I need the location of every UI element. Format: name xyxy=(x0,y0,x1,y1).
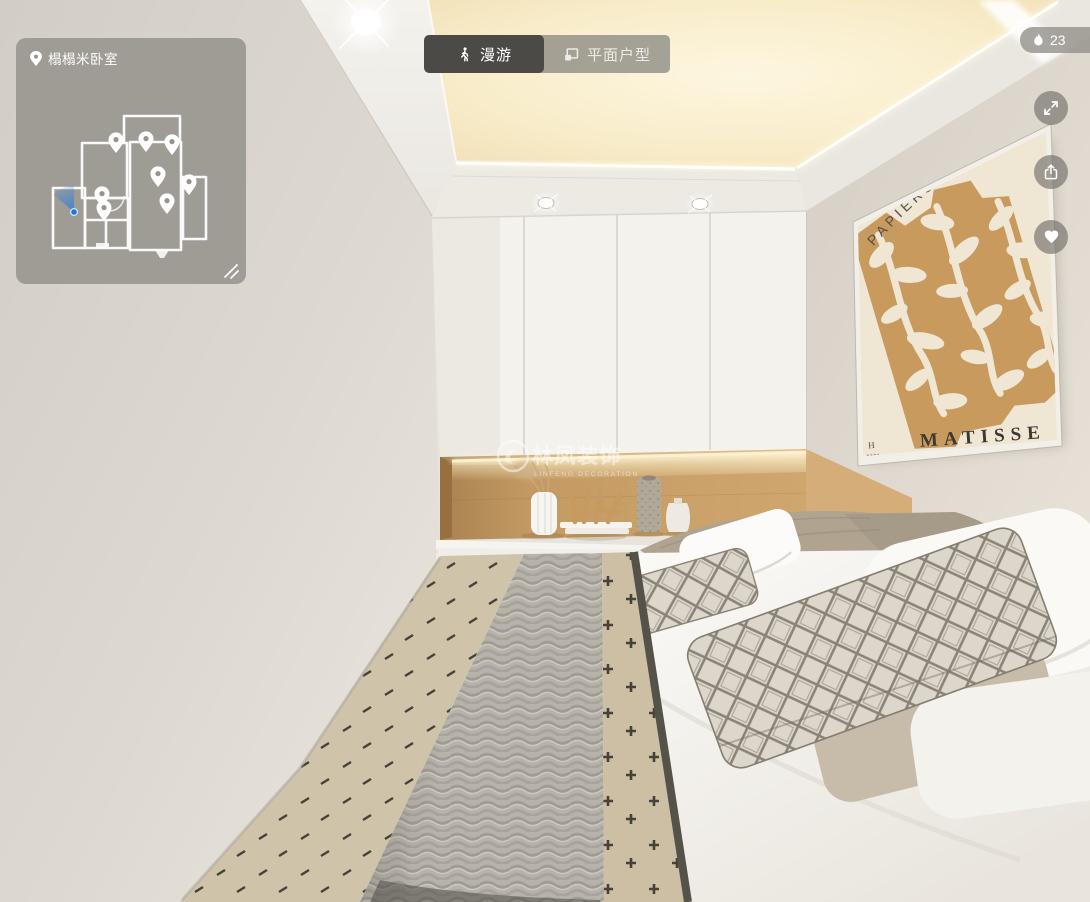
favorite-button[interactable] xyxy=(1034,220,1068,254)
tab-roam[interactable]: 漫游 xyxy=(424,35,544,73)
floorplan-icon xyxy=(563,46,580,63)
floorplan-map[interactable] xyxy=(16,38,246,284)
fullscreen-button[interactable] xyxy=(1034,91,1068,125)
minimap-panel[interactable]: 榻榻米卧室 xyxy=(16,38,246,284)
walking-person-icon xyxy=(456,45,473,64)
small-vase xyxy=(666,503,690,532)
speckled-vase xyxy=(637,477,661,532)
flame-icon xyxy=(1033,33,1044,47)
spotlight xyxy=(688,195,712,213)
tab-floorplan[interactable]: 平面户型 xyxy=(544,35,670,73)
wardrobe-cabinets xyxy=(432,211,806,457)
panorama-viewer: PAPIERS DÉCOUPÉS MATISSE H xyxy=(0,0,1090,902)
spotlight xyxy=(534,194,558,212)
heart-icon xyxy=(1042,228,1061,246)
watermark-brand: 林凤装饰 xyxy=(532,444,622,468)
share-icon xyxy=(1042,163,1060,181)
minimap-resize-handle[interactable] xyxy=(222,262,240,280)
share-button[interactable] xyxy=(1034,155,1068,189)
watermark-brand-en: LINFENG DECORATION xyxy=(534,471,639,478)
expand-arrows-icon xyxy=(1042,99,1060,117)
view-mode-tabs: 漫游 平面户型 xyxy=(424,35,670,73)
poster-corner-mark: H xyxy=(868,440,876,450)
ribbed-vase xyxy=(531,492,557,535)
heat-badge: 23 xyxy=(1020,27,1090,53)
heat-count: 23 xyxy=(1050,32,1066,48)
